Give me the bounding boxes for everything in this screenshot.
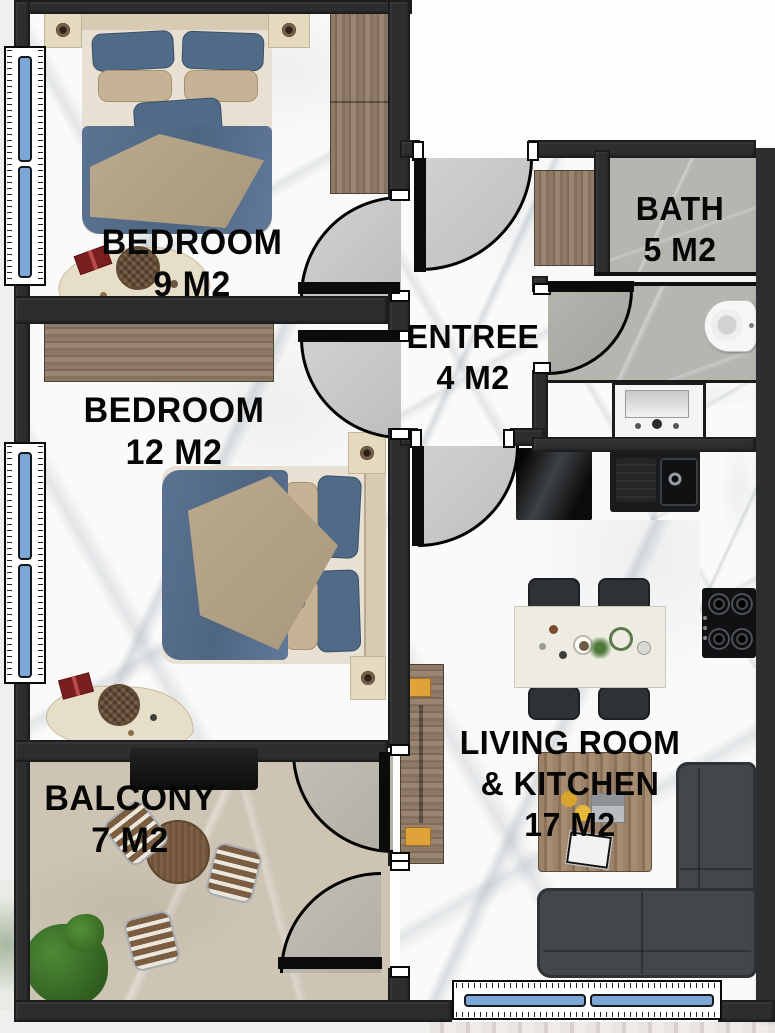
- burner-icon: [708, 593, 730, 615]
- decor-dot: [539, 643, 546, 650]
- door-leaf-balcony-lower: [278, 957, 382, 969]
- wall: [718, 1000, 775, 1022]
- room-name: ENTREE: [391, 316, 556, 357]
- sofa-seam: [543, 950, 751, 952]
- hob-knob: [703, 636, 707, 640]
- flowers-icon: [587, 637, 613, 659]
- decor-dot: [559, 651, 567, 659]
- pillow: [315, 569, 362, 652]
- window-ticks: [456, 1012, 718, 1017]
- basket: [98, 684, 140, 726]
- window-glass: [18, 564, 32, 678]
- room-label-living: LIVING ROOM & KITCHEN 17 M2: [425, 722, 716, 845]
- room-name-line1: LIVING ROOM: [425, 722, 716, 763]
- room-label-entree: ENTREE 4 M2: [391, 316, 556, 398]
- room-area: 12 M2: [38, 432, 310, 474]
- burner-icon: [731, 628, 753, 650]
- window-living: [452, 980, 722, 1020]
- room-label-bedroom12: BEDROOM 12 M2: [38, 390, 310, 474]
- bed-headboard: [364, 466, 386, 664]
- window-bedroom12: [4, 442, 46, 684]
- room-area: 7 M2: [23, 820, 236, 862]
- desk-item: [128, 730, 134, 736]
- decor-dot: [549, 625, 558, 634]
- vanity-sink: [612, 382, 706, 441]
- lamp-icon: [282, 23, 296, 37]
- outside-top-right: [410, 0, 775, 140]
- door-jamb: [503, 429, 515, 448]
- dining-table: [514, 606, 666, 688]
- room-area: 5 M2: [602, 229, 757, 270]
- window-ticks: [456, 983, 718, 988]
- wall: [756, 148, 775, 1016]
- gas-hob: [702, 588, 756, 658]
- window-ticks: [7, 50, 12, 282]
- floor-plan: BEDROOM 9 M2 BEDROOM 12 M2 ENTREE 4 M2 B…: [0, 0, 775, 1033]
- room-area: 9 M2: [56, 264, 328, 306]
- room-label-balcony: BALCONY 7 M2: [23, 778, 236, 862]
- door-leaf-balcony-upper: [379, 752, 390, 852]
- pillow: [181, 31, 264, 72]
- room-name: BEDROOM: [56, 222, 328, 264]
- room-area: 17 M2: [425, 804, 716, 845]
- toilet-bowl: [711, 309, 743, 341]
- wardrobe: [330, 12, 392, 194]
- nightstand: [44, 12, 82, 48]
- window-glass: [590, 994, 714, 1007]
- hob-knob: [703, 616, 707, 620]
- plate-icon: [637, 641, 651, 655]
- door-jamb: [390, 744, 410, 756]
- room-name-line2: & KITCHEN: [425, 763, 716, 804]
- outside-greenery: [0, 880, 14, 1010]
- window-glass: [464, 994, 586, 1007]
- door-leaf-bath: [548, 281, 634, 292]
- lamp-icon: [56, 23, 70, 37]
- pillow: [98, 70, 172, 102]
- door-leaf-living: [412, 446, 424, 546]
- sofa-bottom-arm: [537, 888, 757, 978]
- sofa-seam: [641, 892, 643, 974]
- window-ticks: [7, 446, 12, 680]
- wall: [14, 0, 30, 50]
- toilet-button: [749, 323, 754, 328]
- door-leaf-entrance: [414, 158, 426, 272]
- window-bedroom9: [4, 46, 46, 286]
- double-bed: [162, 466, 384, 664]
- door-jamb: [390, 966, 410, 978]
- window-ticks: [38, 446, 43, 680]
- room-name: BATH: [602, 188, 757, 229]
- outside-bottom-right: [430, 1022, 775, 1033]
- double-bed: [82, 8, 272, 234]
- door-jamb: [390, 189, 410, 201]
- room-name: BEDROOM: [38, 390, 310, 432]
- sink-basin: [625, 390, 689, 418]
- door-jamb: [390, 428, 410, 440]
- pillow: [91, 30, 175, 72]
- room-label-bedroom9: BEDROOM 9 M2: [56, 222, 328, 306]
- tv-icon: [419, 705, 423, 823]
- black-cabinet: [516, 448, 592, 520]
- window-glass: [18, 56, 32, 162]
- wardrobe-divider: [331, 101, 391, 103]
- dining-chair: [598, 686, 650, 720]
- faucet-icon: [668, 472, 682, 486]
- window-glass: [18, 452, 32, 560]
- wall: [388, 0, 410, 198]
- closet: [534, 170, 598, 266]
- window-ticks: [38, 50, 43, 282]
- wall: [14, 0, 412, 14]
- nightstand: [348, 432, 386, 474]
- room-name: BALCONY: [23, 778, 236, 820]
- burner-icon: [708, 628, 730, 650]
- dining-chair: [528, 686, 580, 720]
- toilet: [704, 300, 758, 352]
- desk-item: [150, 714, 157, 721]
- drain: [648, 494, 654, 500]
- wall: [14, 1000, 452, 1022]
- nightstand: [268, 12, 310, 48]
- tap-handle: [635, 423, 641, 429]
- pillow: [184, 70, 258, 102]
- room-area: 4 M2: [391, 357, 556, 398]
- room-label-bath: BATH 5 M2: [602, 188, 757, 270]
- lamp-icon: [361, 671, 375, 685]
- window-glass: [18, 166, 32, 278]
- plant-leaves: [64, 914, 104, 952]
- door-leaf-bedroom12: [298, 330, 400, 342]
- lamp-icon: [360, 446, 374, 460]
- nightstand: [350, 656, 386, 700]
- burner-icon: [731, 593, 753, 615]
- door-jamb: [527, 141, 539, 161]
- hob-knob: [703, 626, 707, 630]
- wall: [388, 428, 410, 748]
- wall: [528, 140, 756, 158]
- door-jamb: [390, 860, 410, 871]
- tap-handle: [673, 423, 679, 429]
- wall: [532, 437, 756, 452]
- sofa-seam: [680, 868, 752, 870]
- kitchen-sink: [610, 450, 700, 512]
- faucet-icon: [652, 419, 662, 429]
- wardrobe: [44, 322, 274, 382]
